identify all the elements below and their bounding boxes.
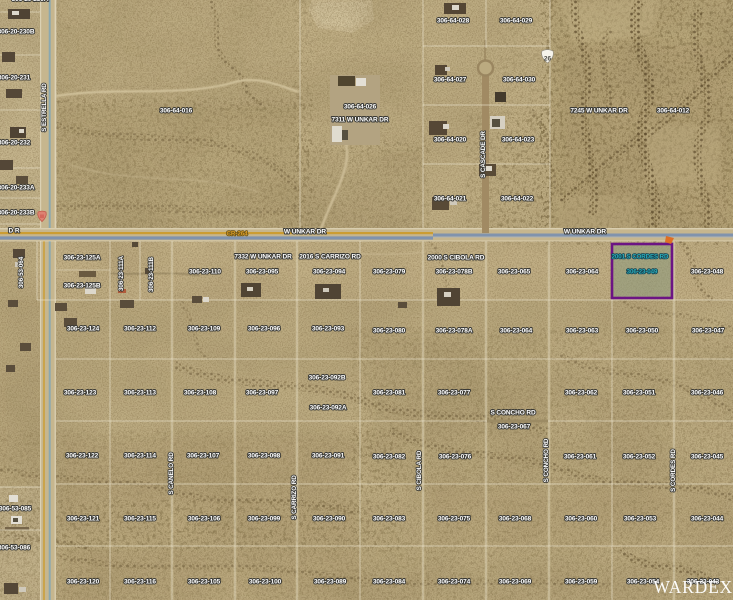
svg-text:2000 S CIBOLA RD: 2000 S CIBOLA RD xyxy=(428,255,485,262)
svg-text:306-20-230B: 306-20-230B xyxy=(0,29,35,36)
svg-text:306-64-027: 306-64-027 xyxy=(434,77,467,84)
svg-text:2001 S CORDES RD: 2001 S CORDES RD xyxy=(612,254,669,261)
svg-text:306-23-107: 306-23-107 xyxy=(187,453,220,460)
svg-text:306-64-026: 306-64-026 xyxy=(344,104,377,111)
svg-text:306-23-060: 306-23-060 xyxy=(565,516,598,523)
svg-text:306-23-095: 306-23-095 xyxy=(246,269,279,276)
svg-text:306-23-044: 306-23-044 xyxy=(691,516,724,523)
svg-text:306-23-047: 306-23-047 xyxy=(692,328,725,335)
svg-text:306-64-030: 306-64-030 xyxy=(503,77,536,84)
svg-text:306-23-092B: 306-23-092B xyxy=(309,375,346,382)
svg-text:CR-264: CR-264 xyxy=(226,231,248,238)
svg-text:306-23-114: 306-23-114 xyxy=(124,453,156,460)
svg-text:306-23-061: 306-23-061 xyxy=(564,454,597,461)
svg-text:S CANELO RD: S CANELO RD xyxy=(168,452,175,495)
svg-text:S CIBOLA RD: S CIBOLA RD xyxy=(416,450,423,490)
svg-text:306-20-233B: 306-20-233B xyxy=(0,210,35,217)
svg-text:S CONCHO RD: S CONCHO RD xyxy=(490,410,536,417)
svg-text:306-23-077: 306-23-077 xyxy=(438,390,471,397)
svg-text:306-53-085: 306-53-085 xyxy=(0,506,32,513)
svg-text:306-23-065: 306-23-065 xyxy=(498,269,531,276)
svg-text:306-23-080: 306-23-080 xyxy=(373,328,406,335)
svg-text:306-23-059: 306-23-059 xyxy=(565,579,598,586)
svg-text:306-23-125B: 306-23-125B xyxy=(64,283,101,290)
svg-text:306-23-081: 306-23-081 xyxy=(373,390,406,397)
svg-text:306-23-089: 306-23-089 xyxy=(314,579,347,586)
svg-text:306-23-094: 306-23-094 xyxy=(313,269,346,276)
svg-text:S CORDES RD: S CORDES RD xyxy=(670,449,677,492)
svg-text:2016 S CARRIZO RD: 2016 S CARRIZO RD xyxy=(299,254,361,261)
svg-text:306-23-112: 306-23-112 xyxy=(124,326,156,333)
svg-text:306-23-105: 306-23-105 xyxy=(188,579,221,586)
svg-text:306-23-125A: 306-23-125A xyxy=(64,255,101,262)
svg-text:7332 W UNKAR DR: 7332 W UNKAR DR xyxy=(234,254,292,261)
svg-text:306-53-086: 306-53-086 xyxy=(0,545,31,552)
svg-text:306-23-100: 306-23-100 xyxy=(249,579,282,586)
svg-text:306-23-078A: 306-23-078A xyxy=(436,328,473,335)
svg-text:306-64-028: 306-64-028 xyxy=(437,18,470,25)
svg-text:306-23-098: 306-23-098 xyxy=(248,453,281,460)
svg-text:306-64-029: 306-64-029 xyxy=(500,18,533,25)
svg-text:306-23-110: 306-23-110 xyxy=(189,269,221,276)
svg-text:306-23-052: 306-23-052 xyxy=(623,454,656,461)
svg-text:306-23-099: 306-23-099 xyxy=(248,516,281,523)
svg-text:306-53-064: 306-53-064 xyxy=(18,256,25,288)
svg-text:306-23-096: 306-23-096 xyxy=(248,326,281,333)
svg-text:306-23-083: 306-23-083 xyxy=(373,516,406,523)
svg-text:306-23-049: 306-23-049 xyxy=(627,269,658,276)
svg-text:306-64-016: 306-64-016 xyxy=(160,108,193,115)
svg-text:7245 W UNKAR DR: 7245 W UNKAR DR xyxy=(570,108,628,115)
svg-text:306-23-076: 306-23-076 xyxy=(439,454,472,461)
svg-text:306-23-064: 306-23-064 xyxy=(500,328,533,335)
svg-text:306-64-020: 306-64-020 xyxy=(434,137,467,144)
svg-text:306-23-079: 306-23-079 xyxy=(373,269,406,276)
svg-text:306-23-064: 306-23-064 xyxy=(566,269,599,276)
svg-text:306-23-048: 306-23-048 xyxy=(691,269,724,276)
svg-text:306-64-023: 306-64-023 xyxy=(502,137,535,144)
svg-text:306-23-124: 306-23-124 xyxy=(67,326,100,333)
svg-text:306-23-108: 306-23-108 xyxy=(184,390,217,397)
svg-text:306-64-012: 306-64-012 xyxy=(657,108,690,115)
svg-text:306-23-122: 306-23-122 xyxy=(66,453,99,460)
svg-text:306-23-082: 306-23-082 xyxy=(373,454,406,461)
svg-text:306-23-121: 306-23-121 xyxy=(67,516,100,523)
svg-text:WARDEX: WARDEX xyxy=(653,577,733,597)
svg-text:W UNKAR DR: W UNKAR DR xyxy=(564,229,607,236)
svg-text:306-23-062: 306-23-062 xyxy=(565,390,598,397)
svg-text:306-23-075: 306-23-075 xyxy=(438,516,471,523)
svg-text:S CONCHO RD: S CONCHO RD xyxy=(543,438,550,482)
svg-text:306-23-046: 306-23-046 xyxy=(691,390,724,397)
svg-text:306-23-078B: 306-23-078B xyxy=(436,269,473,276)
svg-text:306-23-093: 306-23-093 xyxy=(312,326,345,333)
svg-text:306-23-091: 306-23-091 xyxy=(312,453,345,460)
svg-text:W UNKAR DR: W UNKAR DR xyxy=(284,229,327,236)
svg-text:306-23-063: 306-23-063 xyxy=(566,328,599,335)
svg-text:D R: D R xyxy=(9,228,20,235)
svg-text:306-23-123: 306-23-123 xyxy=(64,390,97,397)
svg-text:306-20-230A: 306-20-230A xyxy=(12,0,49,3)
svg-text:306-64-021: 306-64-021 xyxy=(434,196,467,203)
svg-text:306-23-111A: 306-23-111A xyxy=(118,255,125,291)
svg-text:306-23-090: 306-23-090 xyxy=(313,516,346,523)
svg-text:306-23-106: 306-23-106 xyxy=(188,516,221,523)
svg-text:306-23-069: 306-23-069 xyxy=(499,579,532,586)
svg-text:306-23-050: 306-23-050 xyxy=(626,328,659,335)
svg-text:306-20-232: 306-20-232 xyxy=(0,140,31,147)
svg-text:306-23-113: 306-23-113 xyxy=(124,390,156,397)
svg-text:S ESTRELLA RD: S ESTRELLA RD xyxy=(41,83,48,132)
svg-text:306-20-231: 306-20-231 xyxy=(0,75,31,82)
svg-text:306-23-116: 306-23-116 xyxy=(124,579,156,586)
svg-text:S CASCADE DR: S CASCADE DR xyxy=(480,131,487,178)
svg-text:306-23-092A: 306-23-092A xyxy=(310,405,347,412)
svg-text:306-23-115: 306-23-115 xyxy=(124,516,156,523)
svg-text:306-23-074: 306-23-074 xyxy=(438,579,471,586)
svg-text:306-23-051: 306-23-051 xyxy=(623,390,656,397)
svg-text:306-23-067: 306-23-067 xyxy=(498,424,531,431)
svg-text:306-23-068: 306-23-068 xyxy=(499,516,532,523)
svg-text:306-23-084: 306-23-084 xyxy=(373,579,406,586)
svg-text:306-23-053: 306-23-053 xyxy=(624,516,657,523)
svg-text:306-64-022: 306-64-022 xyxy=(501,196,534,203)
svg-text:306-23-045: 306-23-045 xyxy=(691,454,724,461)
svg-text:306-23-120: 306-23-120 xyxy=(67,579,100,586)
svg-text:7311 W UNKAR DR: 7311 W UNKAR DR xyxy=(331,117,388,124)
svg-text:306-20-233A: 306-20-233A xyxy=(0,185,35,192)
svg-text:26: 26 xyxy=(544,56,552,63)
svg-text:306-23-097: 306-23-097 xyxy=(246,390,279,397)
svg-text:306-23-111B: 306-23-111B xyxy=(148,256,155,292)
svg-text:S CARRIZO RD: S CARRIZO RD xyxy=(291,475,298,520)
svg-text:306-23-109: 306-23-109 xyxy=(188,326,221,333)
